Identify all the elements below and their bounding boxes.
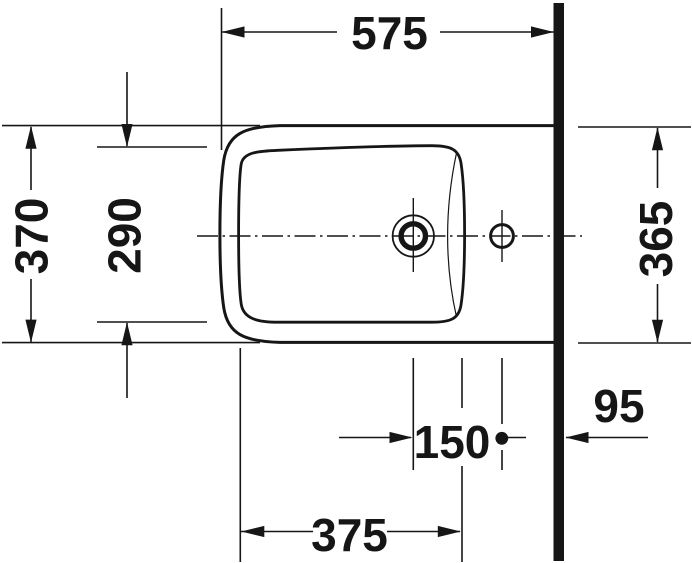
arrow-375-left	[241, 526, 264, 537]
dim-label-right-365: 365	[630, 201, 682, 278]
dimension-arrowheads	[25, 26, 663, 537]
arrow-290-top	[121, 124, 132, 147]
arrow-365-bottom	[652, 320, 663, 343]
arrow-370-top	[25, 126, 36, 149]
arrow-150-left	[390, 432, 413, 443]
bidet-inner-bowl-outline	[239, 146, 465, 323]
bidet-outer-outline	[220, 126, 554, 343]
arrow-95	[566, 432, 589, 443]
bowl-back-contour	[448, 153, 457, 317]
dim-label-left-outer-370: 370	[6, 198, 58, 275]
bidet-body	[220, 126, 554, 343]
dimension-labels: 575 370 290 365 150 95 375	[6, 7, 683, 561]
extension-lines	[2, 8, 691, 562]
technical-drawing-canvas: 575 370 290 365 150 95 375	[0, 0, 692, 563]
arrow-370-bottom	[25, 320, 36, 343]
arrow-575-left	[222, 26, 245, 37]
arrow-375-right	[438, 526, 461, 537]
dim-label-bottom-375: 375	[311, 509, 388, 561]
centerlines	[197, 198, 582, 272]
wall-line	[554, 3, 565, 561]
dim-label-top-575: 575	[351, 7, 428, 59]
arrow-290-bottom	[121, 322, 132, 345]
arrow-575-right	[531, 26, 554, 37]
bidet-dimension-drawing: 575 370 290 365 150 95 375	[0, 0, 692, 563]
dot-terminator-150-95	[495, 432, 508, 445]
arrow-365-top	[652, 127, 663, 150]
dim-label-left-inner-290: 290	[99, 197, 151, 274]
dim-label-holes-150: 150	[414, 416, 491, 468]
dim-label-wall-95: 95	[593, 380, 644, 432]
